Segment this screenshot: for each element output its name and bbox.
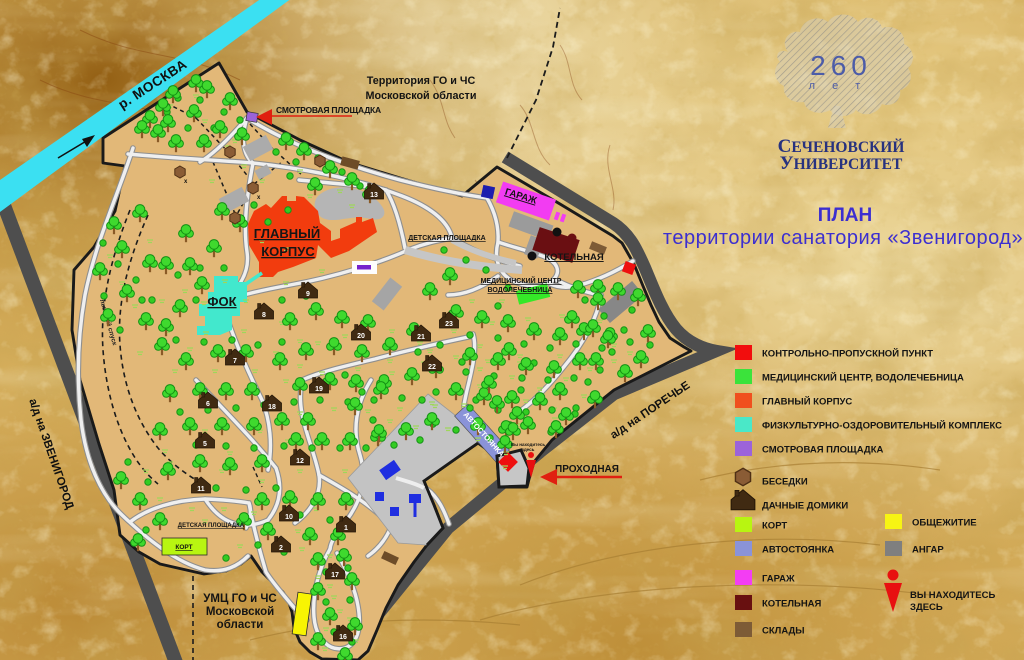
svg-text:УМЦ ГО и ЧС: УМЦ ГО и ЧС: [203, 593, 277, 605]
svg-text:10: 10: [285, 514, 293, 521]
svg-text:АВТОСТОЯНКА: АВТОСТОЯНКА: [762, 545, 834, 556]
svg-text:23: 23: [445, 321, 453, 328]
svg-text:ГЛАВНЫЙ КОРПУС: ГЛАВНЫЙ КОРПУС: [762, 396, 852, 408]
svg-text:260: 260: [810, 50, 872, 81]
svg-text:ВЫ НАХОДИТЕСЬ: ВЫ НАХОДИТЕСЬ: [910, 590, 995, 601]
svg-text:СЕЧЕНОВСКИЙ: СЕЧЕНОВСКИЙ: [778, 136, 905, 157]
svg-text:КОТЕЛЬНАЯ: КОТЕЛЬНАЯ: [762, 599, 822, 610]
svg-text:ФОК: ФОК: [207, 294, 236, 309]
svg-text:ПРОХОДНАЯ: ПРОХОДНАЯ: [555, 464, 619, 475]
svg-text:13: 13: [370, 192, 378, 199]
svg-text:18: 18: [268, 404, 276, 411]
svg-text:СМОТРОВАЯ ПЛОЩАДКА: СМОТРОВАЯ ПЛОЩАДКА: [762, 445, 884, 456]
svg-text:17: 17: [331, 572, 339, 579]
svg-text:1: 1: [344, 525, 348, 532]
svg-text:16: 16: [339, 634, 347, 641]
svg-text:МЕДИЦИНСКИЙ ЦЕНТР, ВОДОЛЕЧЕБНИ: МЕДИЦИНСКИЙ ЦЕНТР, ВОДОЛЕЧЕБНИЦА: [762, 372, 964, 384]
svg-text:КОНТРОЛЬНО-ПРОПУСКНОЙ ПУНКТ: КОНТРОЛЬНО-ПРОПУСКНОЙ ПУНКТ: [762, 348, 933, 360]
svg-text:ДАЧНЫЕ ДОМИКИ: ДАЧНЫЕ ДОМИКИ: [762, 501, 848, 512]
svg-text:8: 8: [262, 312, 266, 319]
svg-text:БЕСЕДКИ: БЕСЕДКИ: [762, 477, 808, 488]
svg-text:21: 21: [417, 334, 425, 341]
svg-text:6: 6: [206, 401, 210, 408]
svg-text:Московской области: Московской области: [366, 90, 477, 102]
svg-text:УНИВЕРСИТЕТ: УНИВЕРСИТЕТ: [780, 153, 903, 174]
svg-text:5: 5: [203, 441, 207, 448]
svg-text:7: 7: [233, 358, 237, 365]
svg-text:территории санатория «Звенигор: территории санатория «Звенигород»: [663, 227, 1023, 249]
svg-text:здесь: здесь: [522, 447, 535, 452]
svg-text:Территория ГО и ЧС: Территория ГО и ЧС: [367, 75, 476, 87]
svg-text:Московской: Московской: [206, 606, 274, 618]
svg-text:области: области: [217, 619, 264, 631]
svg-text:9: 9: [306, 291, 310, 298]
svg-text:ГЛАВНЫЙ: ГЛАВНЫЙ: [254, 226, 320, 241]
svg-text:АНГАР: АНГАР: [912, 545, 944, 556]
svg-text:КОРТ: КОРТ: [175, 544, 192, 551]
svg-text:11: 11: [197, 486, 205, 493]
svg-text:ДЕТСКАЯ ПЛОЩАДКА: ДЕТСКАЯ ПЛОЩАДКА: [408, 235, 485, 242]
svg-text:12: 12: [296, 458, 304, 465]
svg-text:ВОДОЛЕЧЕБНИЦА: ВОДОЛЕЧЕБНИЦА: [488, 287, 553, 294]
svg-text:2: 2: [279, 545, 283, 552]
svg-text:20: 20: [357, 333, 365, 340]
svg-text:ЗДЕСЬ: ЗДЕСЬ: [910, 602, 943, 613]
svg-text:СКЛАДЫ: СКЛАДЫ: [762, 626, 805, 637]
svg-text:МЕДИЦИНСКИЙ ЦЕНТР: МЕДИЦИНСКИЙ ЦЕНТР: [481, 276, 562, 285]
svg-text:ОБЩЕЖИТИЕ: ОБЩЕЖИТИЕ: [912, 518, 977, 529]
svg-text:22: 22: [428, 364, 436, 371]
svg-text:СМОТРОВАЯ ПЛОЩАДКА: СМОТРОВАЯ ПЛОЩАДКА: [276, 105, 381, 115]
svg-text:19: 19: [315, 386, 323, 393]
svg-text:ДЕТСКАЯ ПЛОЩАДКА: ДЕТСКАЯ ПЛОЩАДКА: [178, 523, 245, 529]
svg-text:ГАРАЖ: ГАРАЖ: [762, 574, 795, 585]
svg-text:ФИЗКУЛЬТУРНО-ОЗДОРОВИТЕЛЬНЫЙ К: ФИЗКУЛЬТУРНО-ОЗДОРОВИТЕЛЬНЫЙ КОМПЛЕКС: [762, 420, 1002, 432]
svg-text:л е т: л е т: [809, 80, 868, 92]
svg-text:КОРТ: КОРТ: [762, 521, 787, 532]
svg-text:КОРПУС: КОРПУС: [261, 244, 315, 259]
svg-text:КОТЕЛЬНАЯ: КОТЕЛЬНАЯ: [544, 252, 604, 263]
svg-text:ПЛАН: ПЛАН: [818, 205, 872, 226]
